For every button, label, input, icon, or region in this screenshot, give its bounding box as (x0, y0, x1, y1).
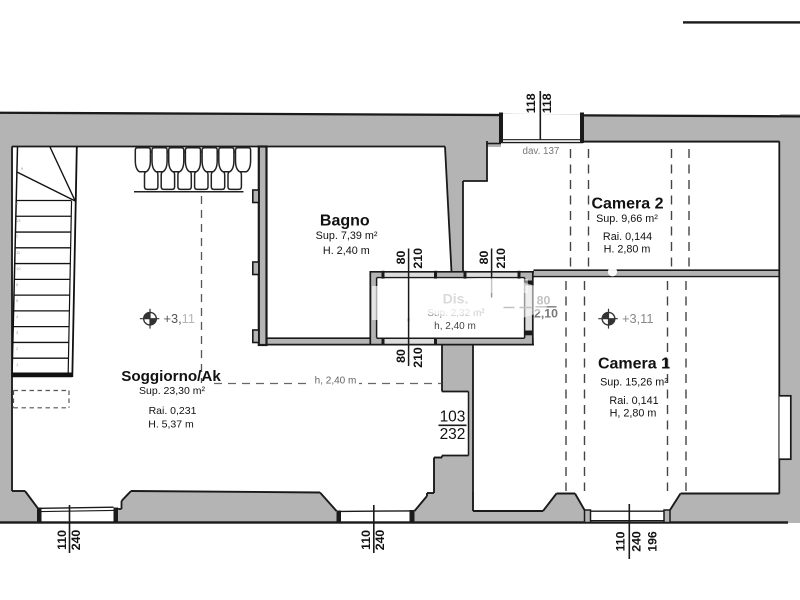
svg-text:110: 110 (359, 530, 373, 550)
svg-text:H. 2,80 m: H. 2,80 m (604, 244, 651, 256)
svg-text:Sup. 7,39 m²: Sup. 7,39 m² (316, 230, 378, 242)
svg-text:80: 80 (394, 251, 408, 265)
svg-text:210: 210 (411, 347, 425, 368)
svg-text:80: 80 (394, 349, 408, 363)
svg-text:Rai. 0,231: Rai. 0,231 (149, 405, 197, 417)
svg-text:H, 2,80 m: H, 2,80 m (610, 408, 657, 420)
svg-text:Camera 2: Camera 2 (591, 196, 663, 213)
svg-text:80: 80 (477, 251, 491, 265)
svg-text:240: 240 (69, 530, 83, 551)
svg-text:h, 2,40 m: h, 2,40 m (315, 376, 357, 387)
svg-text:210: 210 (411, 248, 425, 269)
svg-text:+3,11: +3,11 (622, 311, 653, 326)
svg-text:Camera 1: Camera 1 (598, 356, 670, 373)
svg-text:Rai. 0,144: Rai. 0,144 (603, 231, 652, 243)
svg-text:h, 2,40 m: h, 2,40 m (434, 321, 476, 332)
svg-text:240: 240 (373, 530, 387, 551)
svg-text:Sup. 23,30 m²: Sup. 23,30 m² (139, 385, 205, 397)
svg-text:13: 13 (16, 218, 21, 223)
svg-text:dav. 137: dav. 137 (523, 146, 560, 157)
svg-text:196: 196 (645, 531, 659, 552)
svg-text:10: 10 (16, 266, 21, 271)
svg-text:103: 103 (440, 409, 466, 426)
svg-text:+3,11: +3,11 (164, 311, 195, 326)
svg-text:118: 118 (524, 93, 538, 113)
svg-text:Sup. 15,26 m²: Sup. 15,26 m² (600, 377, 668, 389)
svg-text:Bagno: Bagno (320, 213, 370, 230)
svg-text:Sup. 9,66 m²: Sup. 9,66 m² (596, 213, 658, 225)
svg-text:240: 240 (629, 531, 643, 552)
svg-text:Rai. 0,141: Rai. 0,141 (609, 395, 658, 407)
svg-text:210: 210 (494, 248, 508, 269)
svg-text:H. 2,40 m: H. 2,40 m (323, 245, 370, 257)
svg-text:110: 110 (55, 530, 69, 550)
svg-text:110: 110 (613, 531, 627, 551)
svg-text:H. 5,37 m: H. 5,37 m (148, 419, 194, 431)
svg-text:232: 232 (440, 426, 466, 443)
svg-text:118: 118 (540, 93, 554, 113)
svg-text:Soggiorno/Ak: Soggiorno/Ak (121, 368, 221, 385)
